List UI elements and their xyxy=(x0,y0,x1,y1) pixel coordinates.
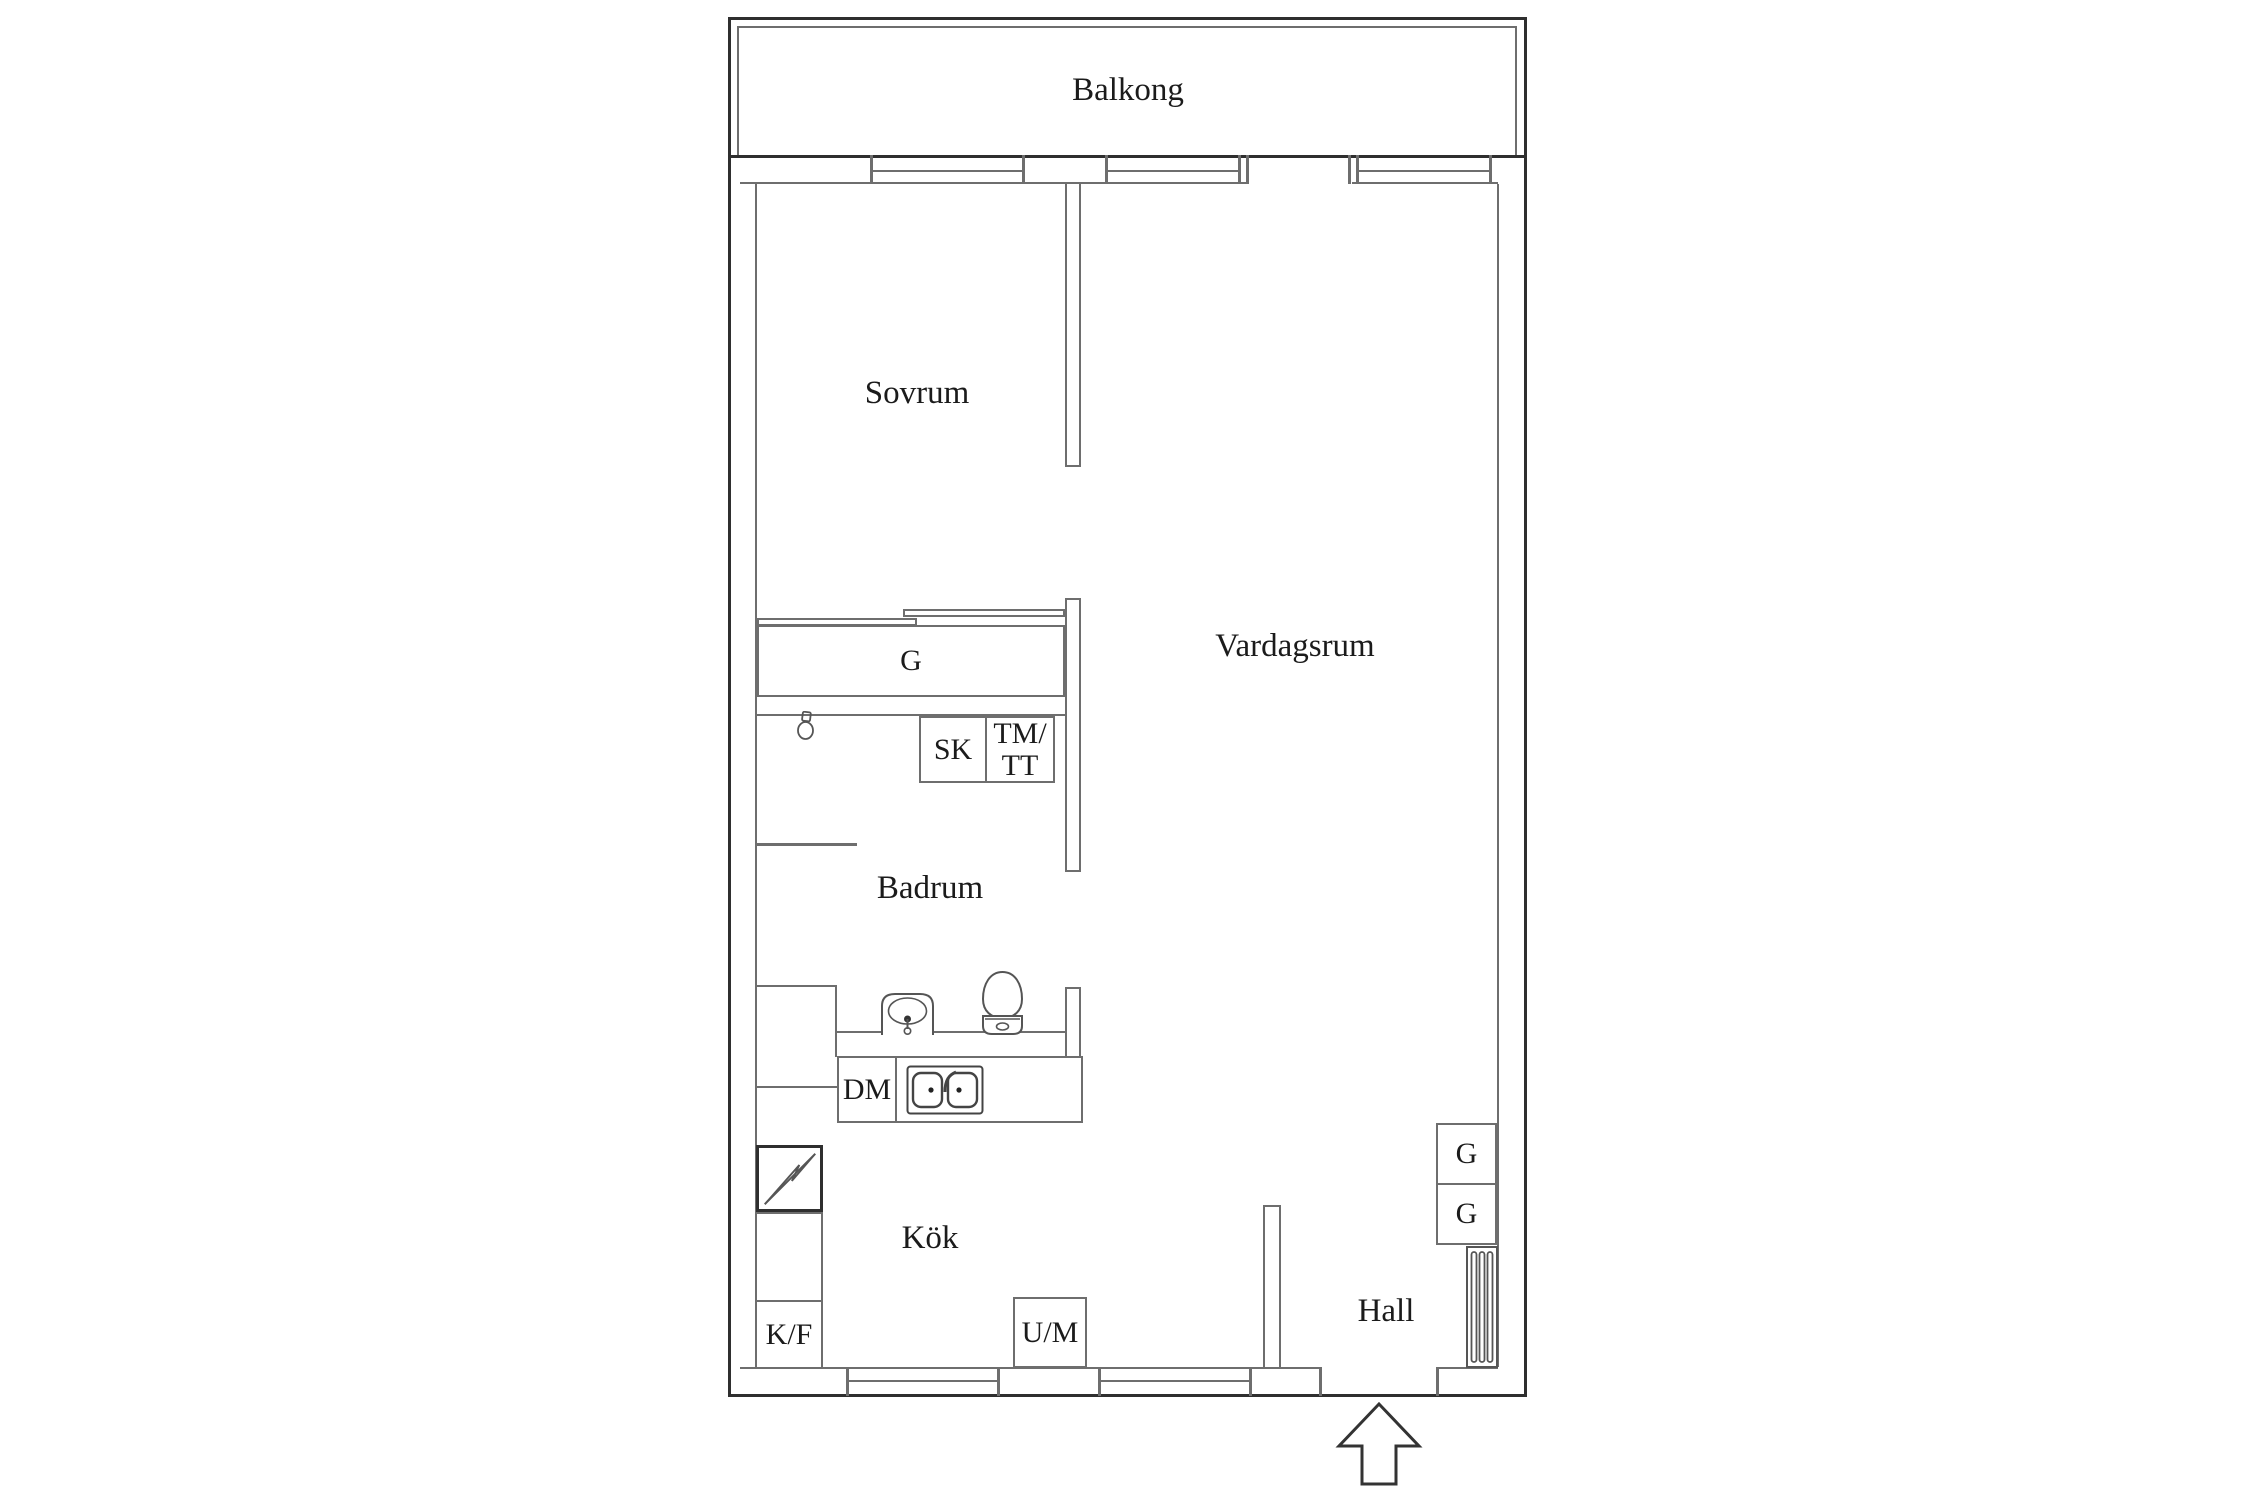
electrical-panel xyxy=(756,1145,823,1212)
wall-top-inner-east xyxy=(1352,182,1498,184)
window-kitchen-mid xyxy=(848,1380,1000,1382)
balcony-wall-inner-right xyxy=(1515,26,1517,156)
ceiling-lamp-icon xyxy=(793,711,819,741)
window-post xyxy=(1238,155,1241,184)
fridge-freezer-label: K/F xyxy=(766,1319,813,1351)
divider-wall-upper xyxy=(1079,184,1081,467)
washer-dryer-line1: TM/ xyxy=(993,717,1046,750)
balcony-wall-inner-left xyxy=(737,26,739,156)
cleaning-cabinet-label: SK xyxy=(934,734,972,766)
hall-wardrobe-box-2: G xyxy=(1436,1183,1497,1245)
bathroom-partition-line xyxy=(757,843,857,846)
oven-microwave-label: U/M xyxy=(1022,1317,1079,1349)
window-post xyxy=(1356,155,1359,184)
wardrobe-label: G xyxy=(900,645,922,677)
bathroom-south-wall-inner xyxy=(835,1031,1065,1033)
wall-right-inner xyxy=(1497,184,1499,1367)
entry-arrow-icon xyxy=(1333,1401,1425,1487)
room-label-bedroom: Sovrum xyxy=(717,372,1117,414)
divider-wall-middle xyxy=(1065,598,1067,872)
bathroom-duct-line xyxy=(757,1086,837,1088)
divider-wall-cap xyxy=(1065,465,1081,467)
divider-wall-cap xyxy=(1065,598,1081,600)
dishwasher-label: DM xyxy=(843,1074,891,1106)
washer-dryer-label: TM/ TT xyxy=(993,718,1046,782)
toilet-icon xyxy=(975,970,1030,1036)
window-post xyxy=(1022,155,1025,184)
balcony-wall-outer-top xyxy=(728,17,1527,20)
balcony-wall-outer-right xyxy=(1524,17,1527,158)
divider-wall-middle xyxy=(1079,598,1081,872)
room-label-balcony: Balkong xyxy=(928,69,1328,111)
room-label-hall: Hall xyxy=(1186,1290,1586,1332)
divider-wall-cap xyxy=(1065,987,1081,989)
balcony-wall-outer-left xyxy=(728,17,731,158)
entry-door-jamb xyxy=(1436,1367,1439,1396)
kitchen-sink-icon xyxy=(906,1065,984,1115)
washer-dryer-box: TM/ TT xyxy=(985,716,1055,783)
hall-wardrobe-box-1: G xyxy=(1436,1123,1497,1185)
kitchen-tall-cabinet xyxy=(755,1212,823,1302)
window-post xyxy=(870,155,873,184)
kitchen-hall-wall xyxy=(1279,1205,1281,1367)
bathroom-step-wall-top xyxy=(757,985,837,987)
wall-top-inner-west xyxy=(740,182,1249,184)
room-label-bathroom: Badrum xyxy=(730,867,1130,909)
kitchen-counter: DM xyxy=(837,1056,1083,1123)
kitchen-hall-wall xyxy=(1263,1205,1265,1367)
kitchen-hall-wall-cap xyxy=(1263,1205,1281,1207)
window-post xyxy=(846,1367,849,1396)
entry-door-jamb xyxy=(1319,1367,1322,1396)
radiator-icon xyxy=(1466,1246,1498,1368)
window-post xyxy=(1098,1367,1101,1396)
bedroom-wardrobe-box: G xyxy=(757,625,1065,697)
sliding-door-panel xyxy=(903,609,1065,617)
balcony-wall-inner-top xyxy=(737,26,1517,28)
window-post xyxy=(1489,155,1492,184)
balcony-door-jamb xyxy=(1348,155,1351,184)
window-living-2-mid xyxy=(1359,170,1492,172)
dishwasher-cell: DM xyxy=(839,1058,897,1121)
room-label-living: Vardagsrum xyxy=(1095,625,1495,667)
wall-left-outer xyxy=(728,155,731,1397)
hall-wardrobe-label-2: G xyxy=(1456,1198,1478,1230)
window-post xyxy=(1249,1367,1252,1396)
divider-wall-upper xyxy=(1065,184,1067,467)
window-post xyxy=(1105,155,1108,184)
cleaning-cabinet-box: SK xyxy=(919,716,987,783)
window-bedroom-mid xyxy=(872,170,1025,172)
wall-right-outer xyxy=(1524,155,1527,1397)
washer-dryer-line2: TT xyxy=(1002,749,1039,782)
oven-microwave-box: U/M xyxy=(1013,1297,1087,1368)
washbasin-icon xyxy=(880,991,935,1036)
bathroom-step-wall-side xyxy=(835,985,837,1057)
balcony-door-jamb xyxy=(1246,155,1249,184)
wall-top-outer xyxy=(728,155,1527,158)
window-hall-mid xyxy=(1100,1380,1252,1382)
window-living-1-mid xyxy=(1107,170,1240,172)
window-post xyxy=(997,1367,1000,1396)
hall-wardrobe-label-1: G xyxy=(1456,1138,1478,1170)
floor-plan: Balkong Sovrum G Vardagsrum xyxy=(0,0,2250,1500)
lightning-bolt-icon xyxy=(762,1151,818,1207)
fridge-freezer-box: K/F xyxy=(755,1300,823,1369)
